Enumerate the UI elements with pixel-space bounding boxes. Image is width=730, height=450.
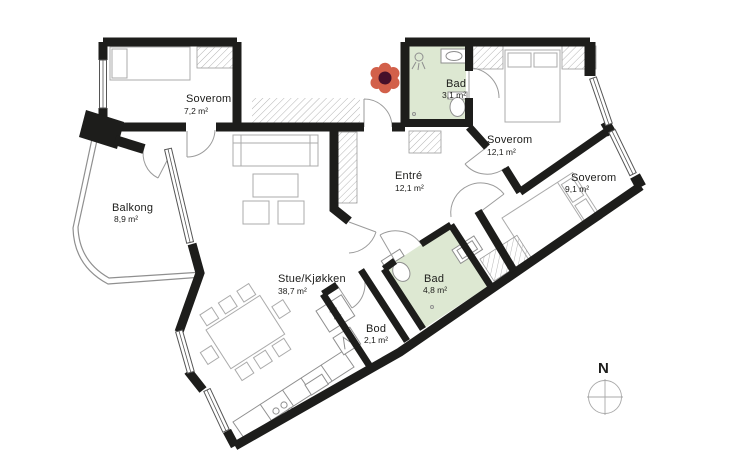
room-area-stue: 38,7 m² (278, 286, 307, 296)
room-label-balkong: Balkong (112, 202, 153, 214)
stairwell-hatch (252, 98, 360, 124)
compass-north-icon: N (587, 360, 623, 415)
room-label-bod: Bod (366, 323, 386, 335)
room-label-bad-1: Bad (446, 78, 466, 90)
room-area-bad-1: 3,1 m² (442, 90, 466, 100)
room-area-entre: 12,1 m² (395, 183, 424, 193)
compass-north-label: N (598, 360, 609, 377)
room-area-soverom-2: 12,1 m² (487, 147, 516, 157)
entrance-flower-icon (371, 63, 400, 94)
room-area-balkong: 8,9 m² (114, 214, 138, 224)
room-area-bad-2: 4,8 m² (423, 285, 447, 295)
room-label-entre: Entré (395, 170, 422, 182)
room-label-soverom-1: Soverom (186, 93, 231, 105)
room-label-bad-2: Bad (424, 273, 444, 285)
room-area-bod: 2,1 m² (364, 335, 388, 345)
room-label-soverom-2: Soverom (487, 134, 532, 146)
room-label-soverom-3: Soverom (571, 172, 616, 184)
floor-plan-drawing: N Soverom 7,2 m² Bad 3,1 m² Soverom 12,1… (0, 0, 730, 450)
room-label-stue: Stue/Kjøkken (278, 273, 346, 285)
room-area-soverom-1: 7,2 m² (184, 106, 208, 116)
room-area-soverom-3: 9,1 m² (565, 184, 589, 194)
floor-plan-page: N Soverom 7,2 m² Bad 3,1 m² Soverom 12,1… (0, 0, 730, 450)
